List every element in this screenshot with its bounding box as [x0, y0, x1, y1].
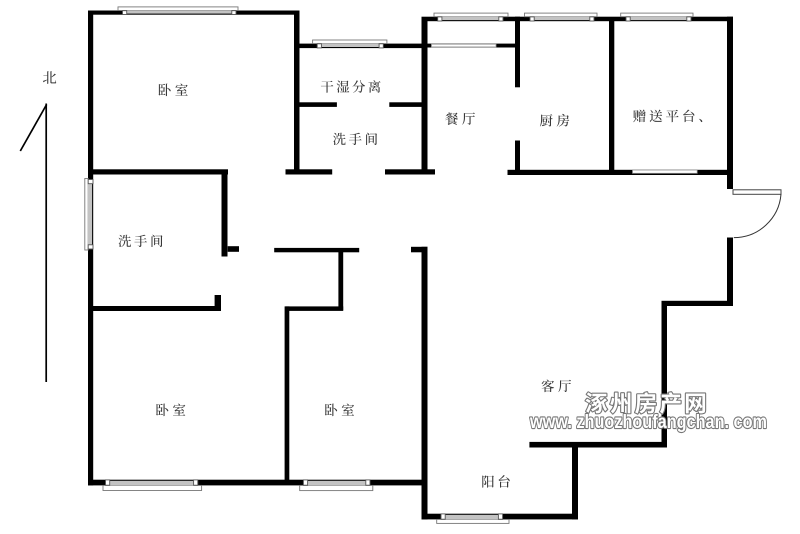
- svg-text:www. zhuozhoufangchan. com: www. zhuozhoufangchan. com: [529, 411, 767, 433]
